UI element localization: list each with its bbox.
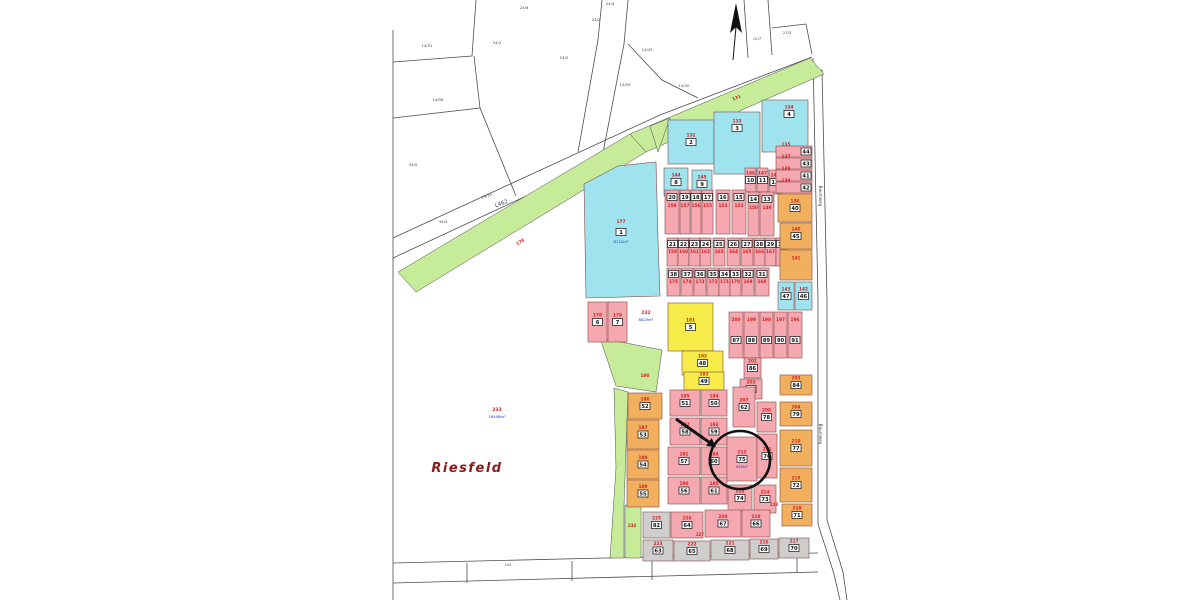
boundary-line (480, 108, 516, 196)
lot-number-56: 56 (680, 488, 688, 494)
lot-number-8: 8 (674, 180, 678, 186)
parcel-number-160: 160 (679, 249, 688, 255)
boundary-line (822, 70, 847, 600)
parcel-number-208: 208 (762, 408, 771, 414)
boundary-line (578, 0, 602, 152)
parcel-number-210: 210 (792, 439, 801, 445)
parcel-number-179: 179 (613, 313, 622, 319)
parcel-number-135: 135 (782, 142, 791, 148)
lot-number-9: 9 (700, 182, 704, 188)
parcel-number-200: 200 (732, 317, 741, 323)
lot-number-69: 69 (760, 547, 768, 553)
parcel-number-158: 158 (668, 203, 677, 209)
parcel-number-139: 139 (782, 178, 791, 184)
parcel-number-204: 204 (792, 405, 801, 411)
parcel-number-155: 155 (703, 203, 712, 209)
lot-number-48: 48 (699, 361, 707, 367)
label-227: 227 (696, 532, 705, 537)
label-233: 233 (492, 407, 501, 413)
lot-number-49: 49 (700, 379, 708, 385)
lot-number-21: 21 (669, 242, 677, 248)
fraction-24-5: 24/5 (560, 55, 569, 60)
lot-number-2: 2 (689, 140, 693, 146)
parcel-number-173: 173 (696, 279, 705, 285)
parcel-number-198: 198 (762, 317, 771, 323)
parcel-number-196: 196 (791, 317, 800, 323)
parcel-number-212: 212 (738, 450, 747, 456)
parcel-number-218: 218 (793, 506, 802, 512)
parcel-number-175: 175 (669, 279, 678, 285)
lot-number-47: 47 (782, 294, 790, 300)
north-arrow-tail (733, 27, 736, 60)
parcel-number-215: 215 (792, 476, 801, 482)
lot-number-87: 87 (732, 338, 740, 344)
boundary-line (602, 0, 628, 158)
lot-number-1: 1 (619, 230, 623, 236)
parcel-number-214: 214 (761, 490, 770, 496)
label-100: 100 (505, 563, 512, 567)
lot-number-43: 43 (802, 161, 810, 167)
lot-area-1: 8112m² (614, 239, 629, 244)
lot-area-75: 540m² (736, 464, 749, 469)
lot-number-70: 70 (790, 546, 798, 552)
parcel-number-136: 136 (791, 199, 800, 205)
lot-number-18: 18 (692, 195, 700, 201)
lot-number-89: 89 (763, 338, 771, 344)
parcel-number-219: 219 (752, 514, 761, 520)
parcel-number-174: 174 (683, 279, 692, 285)
lot-number-53: 53 (639, 432, 647, 438)
area-232: 8823m² (639, 317, 654, 322)
lot-number-7: 7 (616, 320, 620, 326)
lot-number-68: 68 (726, 548, 734, 554)
fraction-34-5: 34/5 (409, 162, 418, 167)
parcel-number-167: 167 (766, 249, 775, 255)
lot-number-50: 50 (710, 401, 718, 407)
boundary-line (768, 0, 772, 55)
lot-141 (780, 250, 812, 280)
area-233: 16408m² (488, 414, 506, 419)
parcel-number-220: 220 (719, 514, 728, 520)
lot-number-25: 25 (715, 242, 723, 248)
green-strip (625, 505, 641, 558)
parcel-number-133: 133 (733, 119, 742, 125)
lot-number-22: 22 (680, 242, 688, 248)
lot-number-66: 66 (752, 521, 760, 527)
lot-number-82: 82 (653, 523, 661, 529)
parcel-number-225: 225 (652, 516, 661, 522)
parcel-number-207: 207 (740, 398, 749, 404)
lot-number-33: 33 (732, 272, 740, 278)
fraction-27-2: 27/2 (783, 30, 792, 35)
parcel-number-185: 185 (710, 481, 719, 487)
lot-number-61: 61 (710, 488, 718, 494)
lot-number-52: 52 (641, 404, 649, 410)
parcel-number-150: 150 (749, 205, 758, 211)
parcel-number-170: 170 (731, 279, 740, 285)
boundary-line (628, 44, 698, 98)
parcel-number-145: 145 (698, 175, 707, 181)
lot-number-38: 38 (670, 272, 678, 278)
parcel-number-159: 159 (668, 249, 677, 255)
lot-number-77: 77 (792, 446, 800, 452)
lot-number-65: 65 (688, 549, 696, 555)
parcel-number-181: 181 (686, 318, 695, 324)
fraction-34-4: 34/4 (439, 219, 448, 224)
fraction-14-33: 14/33 (480, 191, 493, 200)
parcel-number-189: 189 (639, 484, 648, 490)
lot-number-57: 57 (680, 459, 688, 465)
lot-number-42: 42 (802, 185, 810, 191)
parcel-number-142: 142 (799, 287, 808, 293)
lot-number-72: 72 (792, 483, 800, 489)
lot-number-44: 44 (802, 149, 810, 155)
parcel-number-172: 172 (709, 279, 718, 285)
lot-number-5: 5 (689, 325, 693, 331)
parcel-number-182: 182 (698, 354, 707, 360)
parcel-number-168: 168 (758, 279, 767, 285)
label-176: 176 (515, 237, 526, 247)
label-228: 228 (770, 502, 779, 507)
boundary-line (393, 56, 480, 118)
lot-number-14: 14 (750, 197, 758, 203)
parcel-number-161: 161 (690, 249, 699, 255)
parcel-number-203: 203 (792, 376, 801, 382)
parcel-number-137: 137 (782, 154, 791, 160)
fraction-14-56: 14/56 (433, 97, 445, 102)
parcel-map-canvas: 13221333134417718112m²144814591434714246… (0, 0, 1200, 600)
parcel-number-169: 169 (744, 279, 753, 285)
fraction-14-30: 14/30 (679, 83, 691, 88)
parcel-number-165: 165 (743, 249, 752, 255)
lot-number-28: 28 (756, 242, 764, 248)
lot-number-6: 6 (596, 320, 600, 326)
parcel-number-166: 166 (755, 249, 764, 255)
parcel-number-171: 171 (720, 279, 729, 285)
parcel-number-201: 201 (748, 359, 757, 365)
lot-number-36: 36 (696, 272, 704, 278)
parcel-number-178: 178 (593, 313, 602, 319)
parcel-number-202: 202 (747, 380, 756, 386)
lot-number-54: 54 (639, 462, 647, 468)
lot-number-55: 55 (639, 491, 647, 497)
parcel-number-191: 191 (680, 452, 689, 458)
lot-number-59: 59 (710, 429, 718, 435)
parcel-number-193: 193 (710, 422, 719, 428)
parcel-number-157: 157 (681, 203, 690, 209)
parcel-number-195: 195 (681, 394, 690, 400)
lot-number-91: 91 (791, 338, 799, 344)
lot-number-86: 86 (749, 366, 757, 372)
parcel-number-134: 134 (785, 105, 794, 111)
label-232: 232 (641, 310, 650, 316)
parcel-number-140: 140 (792, 227, 801, 233)
parcel-number-177: 177 (617, 219, 626, 225)
parcel-number-144: 144 (672, 173, 681, 179)
lot-number-88: 88 (748, 338, 756, 344)
fraction-14-43: 14/43 (642, 47, 654, 52)
street-label-1: Baumweg (818, 186, 823, 207)
fraction-24-6: 24/6 (520, 5, 529, 10)
parcel-number-141: 141 (792, 256, 801, 262)
lot-number-27: 27 (743, 242, 751, 248)
lot-number-40: 40 (791, 206, 799, 212)
lot-number-31: 31 (758, 272, 766, 278)
green-strip (600, 338, 662, 392)
lot-number-75: 75 (738, 457, 746, 463)
parcel-number-223: 223 (654, 541, 663, 547)
parcel-number-194: 194 (710, 394, 719, 400)
fraction-24-2: 24/2 (592, 17, 601, 22)
parcel-number-183: 183 (700, 372, 709, 378)
lot-number-84: 84 (792, 383, 800, 389)
lot-number-73: 73 (761, 497, 769, 503)
lot-number-46: 46 (800, 294, 808, 300)
fraction-14-59: 14/59 (620, 82, 632, 87)
boundary-line (772, 24, 806, 28)
parcel-number-147: 147 (758, 171, 767, 177)
parcel-number-164: 164 (729, 249, 738, 255)
parcel-number-146: 146 (746, 171, 755, 177)
lot-number-26: 26 (730, 242, 738, 248)
lot-number-17: 17 (704, 195, 712, 201)
lot-number-63: 63 (654, 548, 662, 554)
street-label-2: Baumweg (818, 424, 823, 445)
lot-number-10: 10 (747, 178, 755, 184)
boundary-line (393, 0, 476, 62)
lot-number-4: 4 (787, 112, 791, 118)
lot-number-78: 78 (763, 415, 771, 421)
parcel-number-132: 132 (687, 133, 696, 139)
lot-number-45: 45 (792, 234, 800, 240)
fraction-34-2: 34/2 (493, 40, 502, 45)
parcel-number-163: 163 (715, 249, 724, 255)
lot-number-71: 71 (793, 513, 801, 519)
fraction-12-7: 12/7 (753, 36, 762, 41)
parcel-number-188: 188 (639, 455, 648, 461)
label-234: 234 (628, 523, 637, 528)
parcel-number-197: 197 (776, 317, 785, 323)
lot-number-79: 79 (792, 412, 800, 418)
lot-number-32: 32 (744, 272, 752, 278)
lot-number-15: 15 (735, 195, 743, 201)
lot-number-11: 11 (759, 178, 767, 184)
parcel-number-138: 138 (782, 166, 791, 172)
parcel-number-187: 187 (639, 425, 648, 431)
lot-number-3: 3 (735, 126, 739, 132)
lot-number-67: 67 (719, 521, 727, 527)
parcel-number-149: 149 (763, 205, 772, 211)
lot-number-58: 58 (681, 429, 689, 435)
parcel-number-221: 221 (726, 541, 735, 547)
lot-number-24: 24 (702, 242, 710, 248)
parcel-map: 13221333134417718112m²144814591434714246… (0, 0, 1200, 600)
parcel-number-162: 162 (701, 249, 710, 255)
parcel-number-216: 216 (760, 540, 769, 546)
parcel-number-152: 152 (735, 203, 744, 209)
parcel-number-190: 190 (680, 481, 689, 487)
parcel-number-186: 186 (641, 397, 650, 403)
lot-number-90: 90 (777, 338, 785, 344)
lot-number-51: 51 (681, 401, 689, 407)
fraction-24-4: 24/4 (606, 1, 615, 6)
lot-number-20: 20 (668, 195, 676, 201)
lot-number-29: 29 (767, 242, 775, 248)
lot-number-62: 62 (740, 405, 748, 411)
parcel-number-199: 199 (747, 317, 756, 323)
label-180: 180 (641, 373, 650, 379)
lot-number-74: 74 (736, 496, 744, 502)
lot-number-16: 16 (719, 195, 727, 201)
parcel-number-153: 153 (719, 203, 728, 209)
boundary-line (806, 24, 812, 54)
lot-number-34: 34 (721, 272, 729, 278)
boundary-line (393, 572, 818, 583)
label-riesfeld: Riesfeld (431, 461, 502, 476)
lot-number-37: 37 (683, 272, 691, 278)
lot-number-19: 19 (681, 195, 689, 201)
boundary-line (813, 58, 840, 600)
lot-number-35: 35 (709, 272, 717, 278)
lot-number-41: 41 (802, 173, 810, 179)
parcel-number-222: 222 (688, 542, 697, 548)
boundary-line (744, 0, 748, 58)
fraction-14-51: 14/51 (422, 43, 434, 48)
parcel-number-143: 143 (782, 287, 791, 293)
parcel-number-156: 156 (692, 203, 701, 209)
lot-number-64: 64 (683, 523, 691, 529)
parcel-number-226: 226 (683, 516, 692, 522)
lot-number-13: 13 (763, 197, 771, 203)
parcel-number-217: 217 (790, 539, 799, 545)
lot-number-23: 23 (691, 242, 699, 248)
